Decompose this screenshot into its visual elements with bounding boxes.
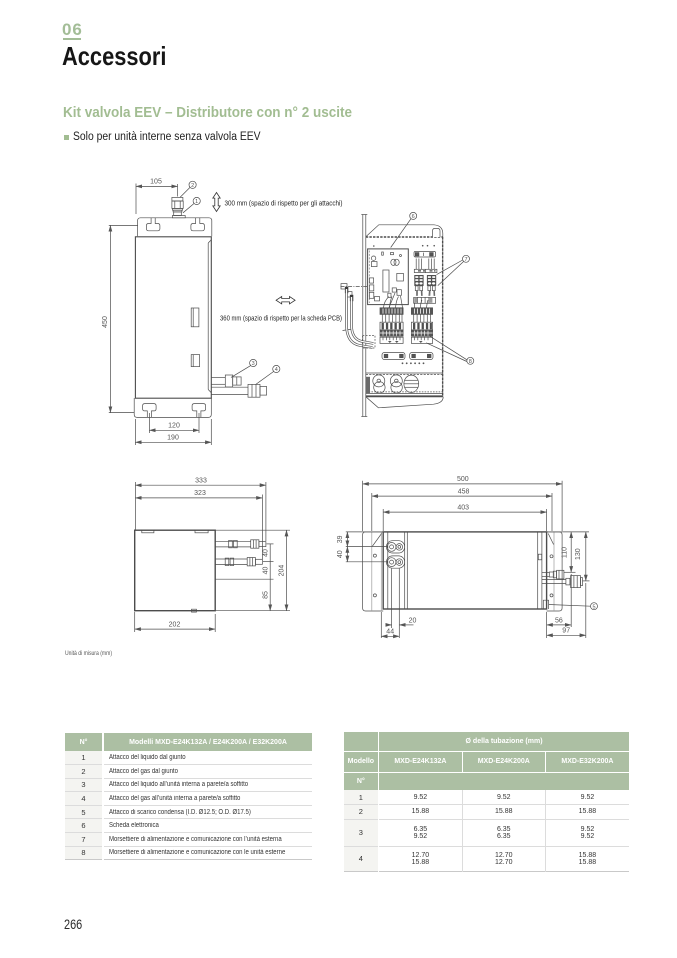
svg-text:44: 44	[386, 629, 394, 636]
svg-text:458: 458	[458, 488, 470, 495]
svg-text:105: 105	[150, 179, 162, 186]
svg-text:4: 4	[275, 367, 278, 373]
svg-text:360 mm (spazio di rispetto per: 360 mm (spazio di rispetto per la scheda…	[220, 314, 342, 323]
svg-text:450: 450	[102, 316, 109, 328]
svg-text:56: 56	[555, 617, 563, 624]
svg-text:1: 1	[195, 199, 198, 205]
svg-text:110: 110	[562, 547, 569, 558]
svg-text:40: 40	[262, 567, 269, 575]
svg-text:85: 85	[262, 591, 269, 599]
svg-text:300 mm (spazio di rispetto per: 300 mm (spazio di rispetto per gli attac…	[225, 198, 343, 207]
svg-text:190: 190	[167, 435, 179, 442]
svg-text:6: 6	[412, 214, 415, 220]
svg-text:204: 204	[278, 565, 285, 577]
svg-text:120: 120	[168, 423, 180, 430]
svg-text:202: 202	[169, 621, 181, 628]
svg-text:130: 130	[575, 548, 582, 560]
svg-text:2: 2	[191, 183, 194, 189]
svg-text:40: 40	[262, 549, 269, 557]
svg-text:97: 97	[562, 628, 570, 635]
svg-text:5: 5	[592, 604, 595, 610]
svg-text:20: 20	[409, 618, 417, 625]
svg-text:403: 403	[457, 504, 469, 511]
svg-text:323: 323	[194, 490, 206, 497]
svg-text:8: 8	[469, 359, 472, 365]
svg-text:333: 333	[195, 478, 207, 485]
svg-text:500: 500	[457, 476, 469, 483]
svg-text:39: 39	[337, 535, 344, 543]
svg-text:7: 7	[464, 257, 467, 263]
svg-text:3: 3	[252, 361, 255, 367]
svg-text:40: 40	[337, 550, 344, 558]
